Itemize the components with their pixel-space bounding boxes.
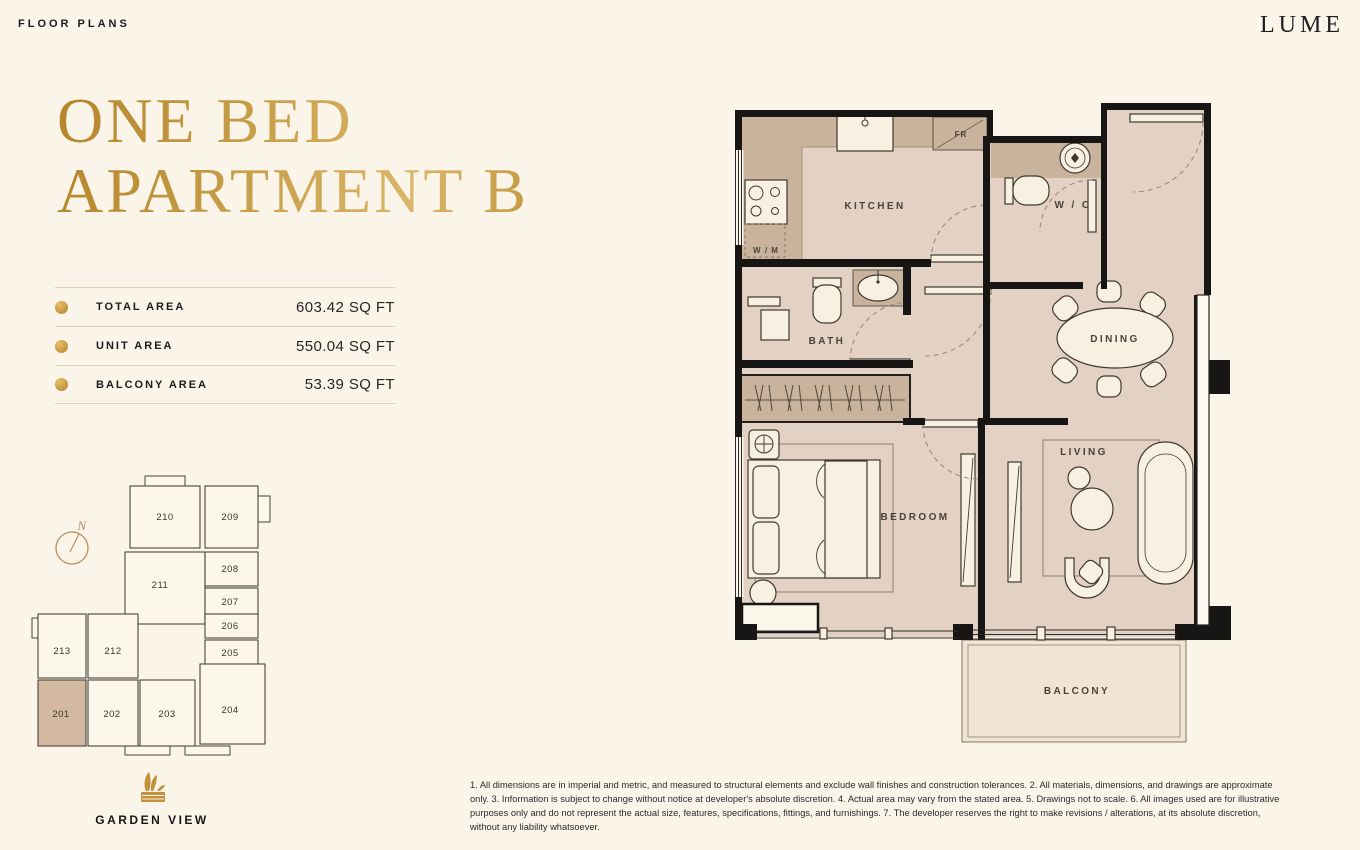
- gold-bullet-icon: [55, 340, 68, 353]
- wc-label: W / C: [1055, 200, 1092, 211]
- page-title-line1: ONE BED: [57, 86, 529, 156]
- area-label: BALCONY AREA: [96, 379, 208, 391]
- balcony-label: BALCONY: [1044, 686, 1110, 697]
- page-eyebrow: FLOOR PLANS: [18, 18, 130, 30]
- dining-label: DINING: [1090, 334, 1139, 345]
- keyplan-units: 210 209 211 208 207 206 205 204 213 212 …: [32, 476, 270, 755]
- building-key-plan: N 210 209 211 208 207 206 205 204 213 21…: [30, 468, 280, 758]
- page-title-line2: APARTMENT B: [57, 156, 529, 226]
- sofa: [1138, 442, 1193, 584]
- wc-toilet: [1005, 176, 1049, 205]
- area-value: 550.04 SQ FT: [296, 338, 395, 355]
- bed: [748, 460, 880, 578]
- bath-label: BATH: [809, 336, 846, 347]
- coffee-table-small: [1068, 467, 1090, 489]
- bath-shelf: [748, 297, 780, 306]
- area-row-total: TOTAL AREA 603.42 SQ FT: [55, 287, 395, 326]
- bedroom-tv-unit: [961, 454, 975, 586]
- area-value: 53.39 SQ FT: [305, 376, 395, 393]
- armchair: [1065, 558, 1109, 598]
- unit-number: 211: [152, 580, 169, 591]
- wc-basin: [1060, 143, 1090, 173]
- fridge: FR: [933, 117, 987, 150]
- unit-number: 202: [103, 709, 120, 720]
- brand-wordmark: LUME: [1260, 12, 1344, 39]
- bedroom-stool: [750, 580, 776, 606]
- area-value: 603.42 SQ FT: [296, 299, 395, 316]
- area-summary: TOTAL AREA 603.42 SQ FT UNIT AREA 550.04…: [55, 287, 395, 404]
- area-row-balcony: BALCONY AREA 53.39 SQ FT: [55, 365, 395, 404]
- unit-number: 205: [221, 648, 238, 659]
- washing-machine-label: W / M: [753, 246, 779, 255]
- garden-plant-icon: [132, 768, 172, 804]
- apartment-floor-plan: FR W / M: [725, 92, 1235, 752]
- page-title: ONE BED APARTMENT B: [57, 86, 529, 226]
- kitchen-sink: [837, 113, 893, 151]
- gold-bullet-icon: [55, 301, 68, 314]
- unit-number: 203: [158, 709, 175, 720]
- living-console: [1008, 462, 1021, 582]
- living-label: LIVING: [1060, 447, 1108, 458]
- bath-shower: [761, 310, 789, 340]
- window-bedroom: [734, 437, 744, 597]
- garden-view-label: GARDEN VIEW: [92, 813, 212, 827]
- legal-disclaimer: 1. All dimensions are in imperial and me…: [470, 778, 1282, 834]
- area-label: UNIT AREA: [96, 340, 173, 352]
- unit-number: 210: [156, 512, 173, 523]
- glazing-right: [1197, 295, 1209, 625]
- north-compass-icon: N: [56, 518, 88, 564]
- unit-number: 207: [221, 597, 238, 608]
- unit-number: 213: [53, 646, 70, 657]
- unit-number: 209: [221, 512, 238, 523]
- window-kitchen: [734, 150, 744, 245]
- unit-number: 208: [221, 564, 238, 575]
- area-row-unit: UNIT AREA 550.04 SQ FT: [55, 326, 395, 365]
- area-label: TOTAL AREA: [96, 301, 185, 313]
- bedside-table-lamp: [749, 430, 779, 459]
- kitchen-label: KITCHEN: [844, 201, 905, 212]
- wardrobe: [740, 375, 910, 422]
- unit-number: 212: [104, 646, 121, 657]
- stove-cooktop: [745, 180, 787, 224]
- unit-number: 206: [221, 621, 238, 632]
- keyplan-unit-204: [200, 664, 265, 744]
- bath-toilet: [813, 278, 841, 323]
- unit-number: 204: [221, 705, 238, 716]
- north-label: N: [76, 518, 87, 533]
- gold-bullet-icon: [55, 378, 68, 391]
- garden-view-caption: GARDEN VIEW: [92, 768, 212, 827]
- fridge-label: FR: [955, 130, 968, 139]
- bedroom-label: BEDROOM: [880, 512, 949, 523]
- coffee-table-large: [1071, 488, 1113, 530]
- unit-number: 201: [52, 709, 69, 720]
